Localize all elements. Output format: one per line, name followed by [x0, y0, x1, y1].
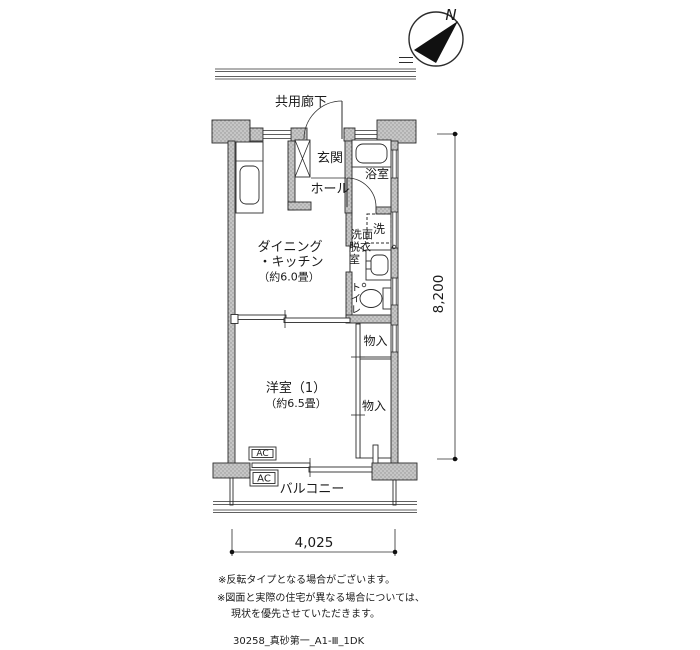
label-dining-line1: ダイニング	[257, 240, 322, 255]
wall-segment	[345, 141, 352, 213]
label-washer: 洗	[373, 222, 385, 236]
closet-side-panel	[373, 445, 378, 463]
label-western-room: 洋室（1）	[266, 380, 326, 396]
label-closet-upper: 物入	[363, 334, 387, 348]
background	[0, 0, 700, 650]
kitchen-counter	[236, 142, 263, 213]
label-entrance: 玄関	[317, 151, 343, 166]
label-western-size: （約6.5畳）	[265, 396, 327, 410]
wall-segment	[376, 207, 391, 214]
wall-segment	[346, 315, 391, 323]
label-dining-size: （約6.0畳）	[258, 270, 320, 284]
wall-segment	[250, 128, 263, 141]
note-line2: ※図面と実際の住宅が異なる場合については、	[217, 591, 425, 604]
closet-doors	[356, 324, 360, 458]
note-line3: 現状を優先させていただきます。	[231, 607, 380, 620]
side-window	[391, 325, 399, 352]
wall-segment	[212, 120, 250, 143]
shoe-cabinet	[295, 140, 310, 177]
wall-segment	[372, 463, 417, 480]
wall-segment	[213, 463, 250, 478]
label-dining-line2: ・キッチン	[258, 255, 323, 270]
wall-left	[228, 141, 235, 467]
label-corridor: 共用廊下	[275, 94, 327, 110]
label-washroom-line2: 脱衣	[349, 240, 371, 254]
wall-segment	[288, 202, 311, 210]
label-toilet-char3: レ	[351, 305, 361, 316]
wall-segment	[344, 128, 355, 141]
floorplan-page: N 共用廊下	[0, 0, 700, 650]
label-washroom-line3: 室	[349, 252, 360, 266]
balcony-post	[230, 478, 233, 505]
floorplan-drawing: N 共用廊下	[0, 0, 700, 650]
label-balcony: バルコニー	[280, 482, 345, 497]
north-label: N	[445, 6, 456, 24]
dimension-vertical-value: 8,200	[431, 275, 447, 314]
kitchen-sink	[240, 166, 259, 204]
label-toilet-char1: ト	[351, 283, 361, 294]
wall-segment	[288, 141, 295, 210]
label-bath: 浴室	[365, 166, 389, 181]
ac-unit-indoor: AC	[249, 447, 276, 460]
label-toilet-char2: イ	[351, 294, 361, 305]
ac-label: AC	[257, 474, 271, 485]
kitchen-window	[263, 129, 291, 141]
label-closet-lower: 物入	[362, 399, 386, 413]
side-window	[391, 278, 399, 305]
side-window	[391, 150, 399, 178]
drawing-code: 30258_真砂第一_A1-Ⅲ_1DK	[233, 634, 365, 647]
bath-window	[355, 129, 377, 141]
side-window	[391, 212, 399, 248]
ac-label: AC	[256, 449, 268, 459]
label-washroom-line1: 洗面	[351, 228, 373, 241]
label-hall: ホール	[310, 182, 349, 197]
ac-unit-balcony: AC	[250, 470, 278, 486]
toilet-fixture	[360, 288, 391, 309]
bathtub	[352, 140, 391, 167]
dimension-horizontal-value: 4,025	[295, 535, 334, 551]
note-line1: ※反転タイプとなる場合がございます。	[218, 573, 395, 586]
washbasin	[366, 250, 391, 280]
